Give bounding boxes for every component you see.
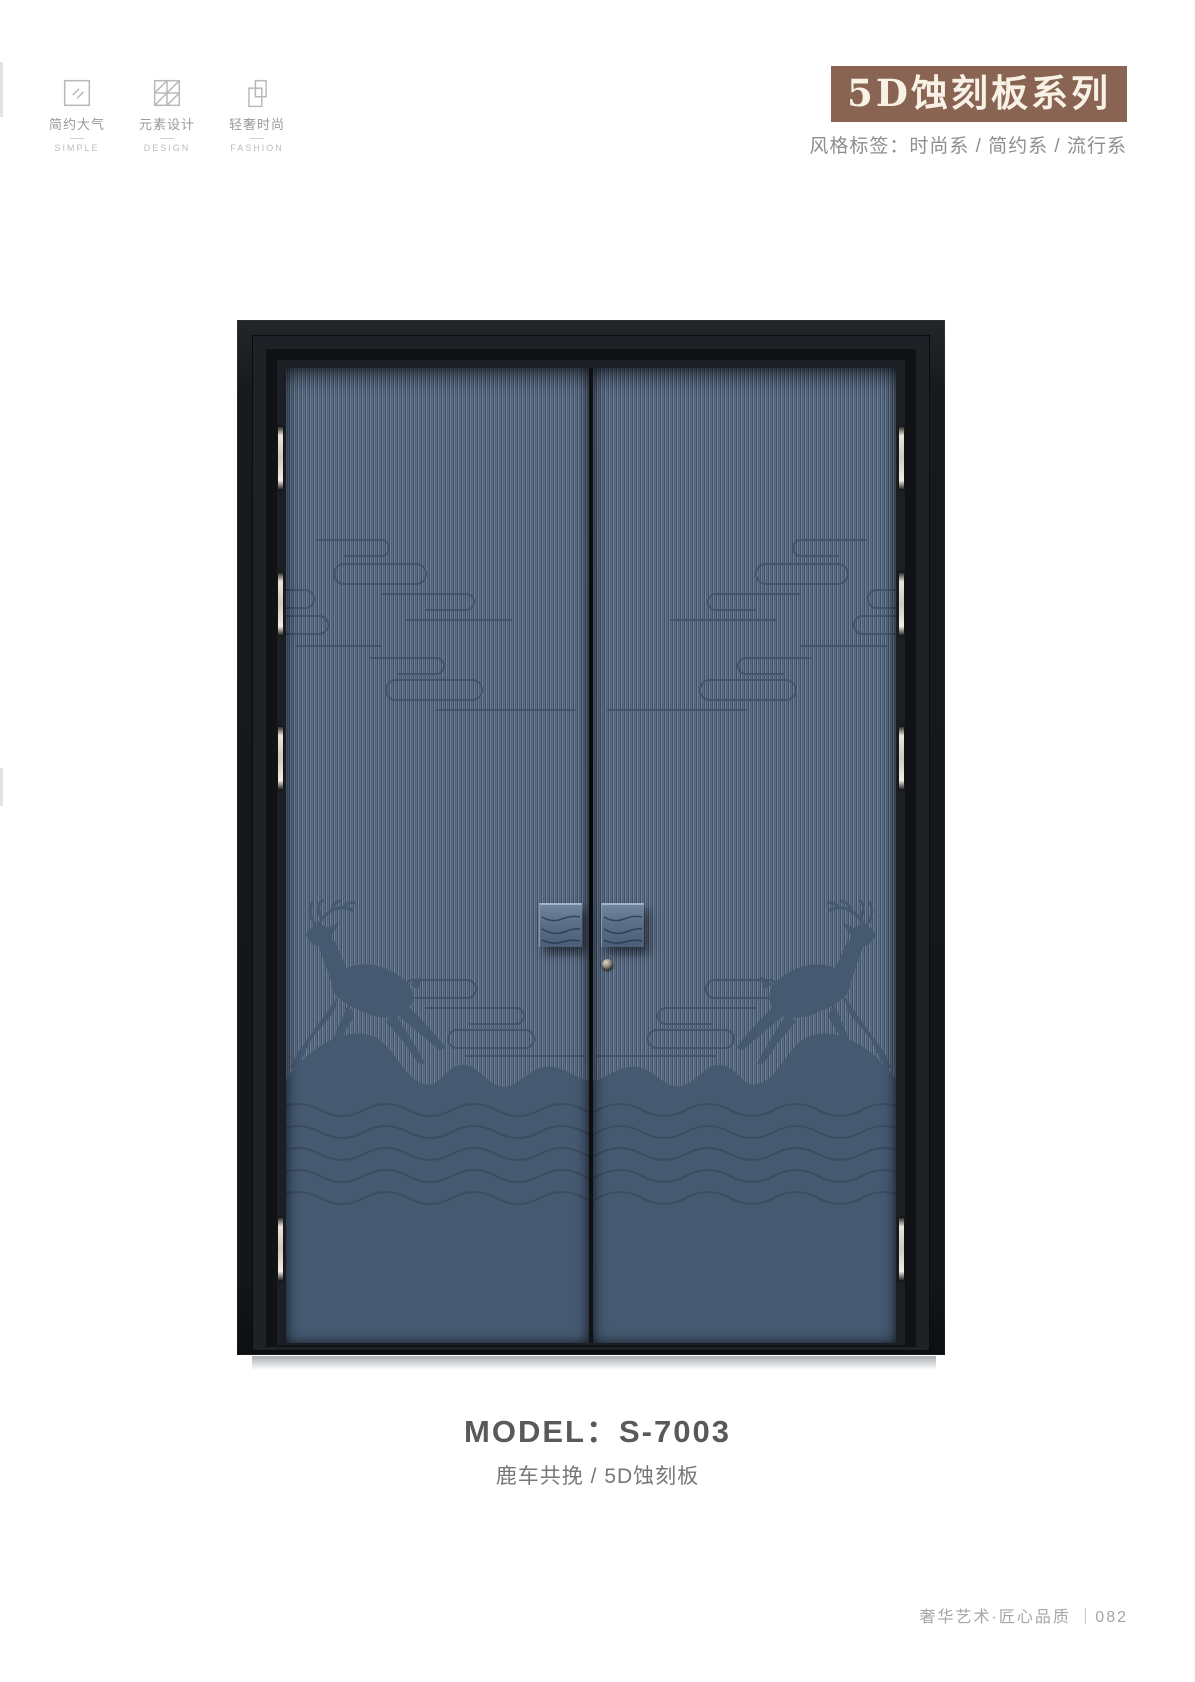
feature-label-en: FASHION (212, 143, 302, 153)
door-leaf-left (286, 368, 589, 1343)
door-handle-left (539, 903, 582, 947)
panel-grid-icon (122, 74, 212, 108)
page-footer: 奢华艺术·匠心品质 ｜082 (920, 1603, 1128, 1627)
hinge (899, 573, 904, 635)
feature-label-zh: 元素设计 (122, 114, 212, 133)
door-leaf-right (593, 368, 896, 1343)
model-number: MODEL：S-7003 (0, 1406, 1195, 1451)
feature-label-zh: 轻奢时尚 (212, 114, 302, 133)
hinge (278, 1218, 283, 1280)
feature-simple: 简约大气 SIMPLE (32, 74, 122, 153)
product-subtitle: 鹿车共挽 / 5D蚀刻板 (0, 1460, 1195, 1490)
feature-divider (250, 138, 264, 139)
feature-divider (160, 138, 174, 139)
door-overlap-icon (212, 74, 302, 108)
door-opening (286, 368, 896, 1343)
page-edge-mark (0, 768, 3, 806)
glass-pane-icon (32, 74, 122, 108)
hinge (278, 427, 283, 489)
door-product-image (237, 320, 945, 1355)
hinge (899, 427, 904, 489)
keyhole (602, 959, 613, 970)
feature-list: 简约大气 SIMPLE 元素设计 DESIGN (32, 74, 302, 153)
feature-divider (70, 138, 84, 139)
floor-shadow (252, 1356, 936, 1370)
page-edge-mark (0, 62, 3, 117)
feature-label-en: SIMPLE (32, 143, 122, 153)
style-tags: 风格标签：时尚系 / 简约系 / 流行系 (809, 131, 1127, 158)
feature-label-en: DESIGN (122, 143, 212, 153)
hinge (278, 727, 283, 789)
door-handle-right (601, 903, 644, 947)
product-caption: MODEL：S-7003 鹿车共挽 / 5D蚀刻板 (0, 1406, 1195, 1490)
hinge (899, 1218, 904, 1280)
hinge (278, 573, 283, 635)
feature-design: 元素设计 DESIGN (122, 74, 212, 153)
feature-fashion: 轻奢时尚 FASHION (212, 74, 302, 153)
series-title-banner: 5D蚀刻板系列 (831, 66, 1127, 122)
feature-label-zh: 简约大气 (32, 114, 122, 133)
catalog-page: 简约大气 SIMPLE 元素设计 DESIGN (0, 0, 1195, 1682)
hinge (899, 727, 904, 789)
